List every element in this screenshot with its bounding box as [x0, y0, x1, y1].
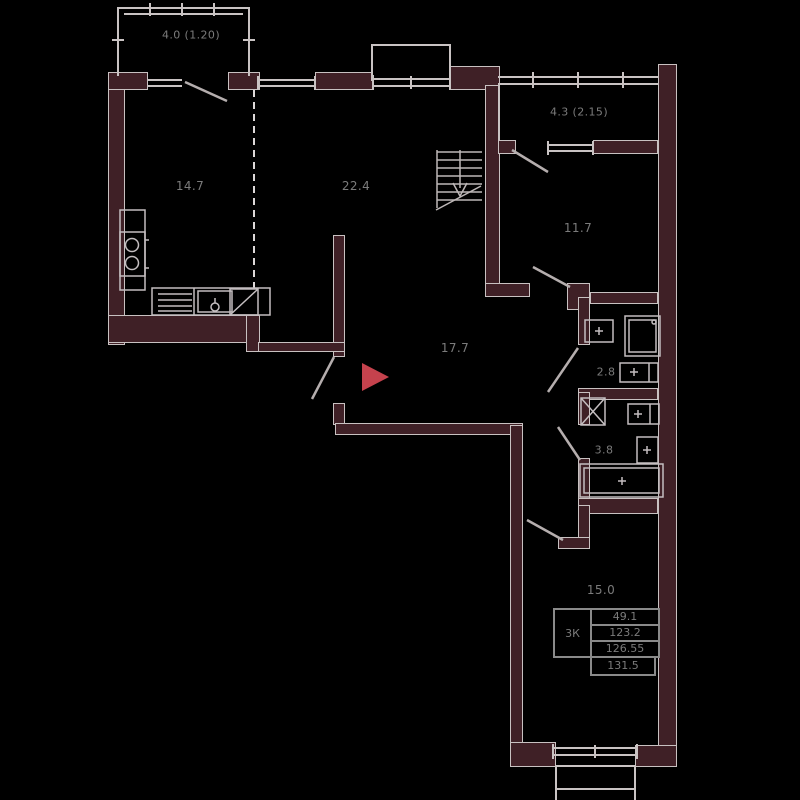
- window-room117: [548, 141, 593, 155]
- toilet-icon: [620, 363, 658, 382]
- washbasin-icon: [585, 320, 613, 342]
- info-table-main: 3К 49.1 123.2 126.55: [553, 608, 660, 658]
- area-label-bathroom-large: 3.8: [595, 444, 614, 457]
- stove-icon: [120, 232, 149, 276]
- window-glazing: [148, 76, 315, 90]
- info-table-values: 49.1 123.2 126.55: [592, 610, 658, 656]
- area-label-kitchen: 14.7: [176, 179, 204, 193]
- fridge-icon: [230, 289, 258, 315]
- area-label-bedroom-upper: 11.7: [564, 221, 592, 235]
- area-label-bathroom-small: 2.8: [597, 366, 616, 379]
- area-label-balcony-top-left: 4.0 (1.20): [162, 29, 220, 42]
- cabinet-icon: [158, 288, 194, 315]
- door-swing: [185, 82, 580, 540]
- washing-machine-icon: [581, 398, 605, 425]
- apartment-info-table: 3К 49.1 123.2 126.55 131.5: [553, 608, 660, 676]
- area-label-bedroom-lower: 15.0: [587, 583, 615, 597]
- info-value-living-area: 49.1: [592, 610, 658, 626]
- info-value-area-2: 123.2: [592, 626, 658, 642]
- bay-window-top: [372, 45, 450, 90]
- apartment-type-cell: 3К: [555, 610, 592, 656]
- shower-icon: [625, 316, 660, 356]
- area-label-hall: 17.7: [441, 341, 469, 355]
- area-label-balcony-top-right: 4.3 (2.15): [550, 106, 608, 119]
- counter-icon: [120, 210, 145, 290]
- plan-linework: [0, 0, 800, 800]
- info-value-area-3: 126.55: [592, 642, 658, 656]
- washbasin-icon: [637, 437, 658, 463]
- toilet-icon: [628, 404, 659, 424]
- info-value-total-area: 131.5: [590, 658, 656, 676]
- bathtub-icon: [580, 464, 663, 497]
- area-label-living-room: 22.4: [342, 179, 370, 193]
- kitchen-sink-icon: [198, 291, 232, 312]
- bathroom-large-fixtures: [580, 398, 663, 497]
- kitchen-fixtures: [120, 210, 270, 315]
- staircase-icon: [436, 150, 482, 210]
- window-bedroom: [553, 744, 637, 800]
- floor-plan: 4.0 (1.20) 14.7 22.4 4.3 (2.15) 11.7 17.…: [0, 0, 800, 800]
- entrance-marker-icon: [362, 363, 389, 391]
